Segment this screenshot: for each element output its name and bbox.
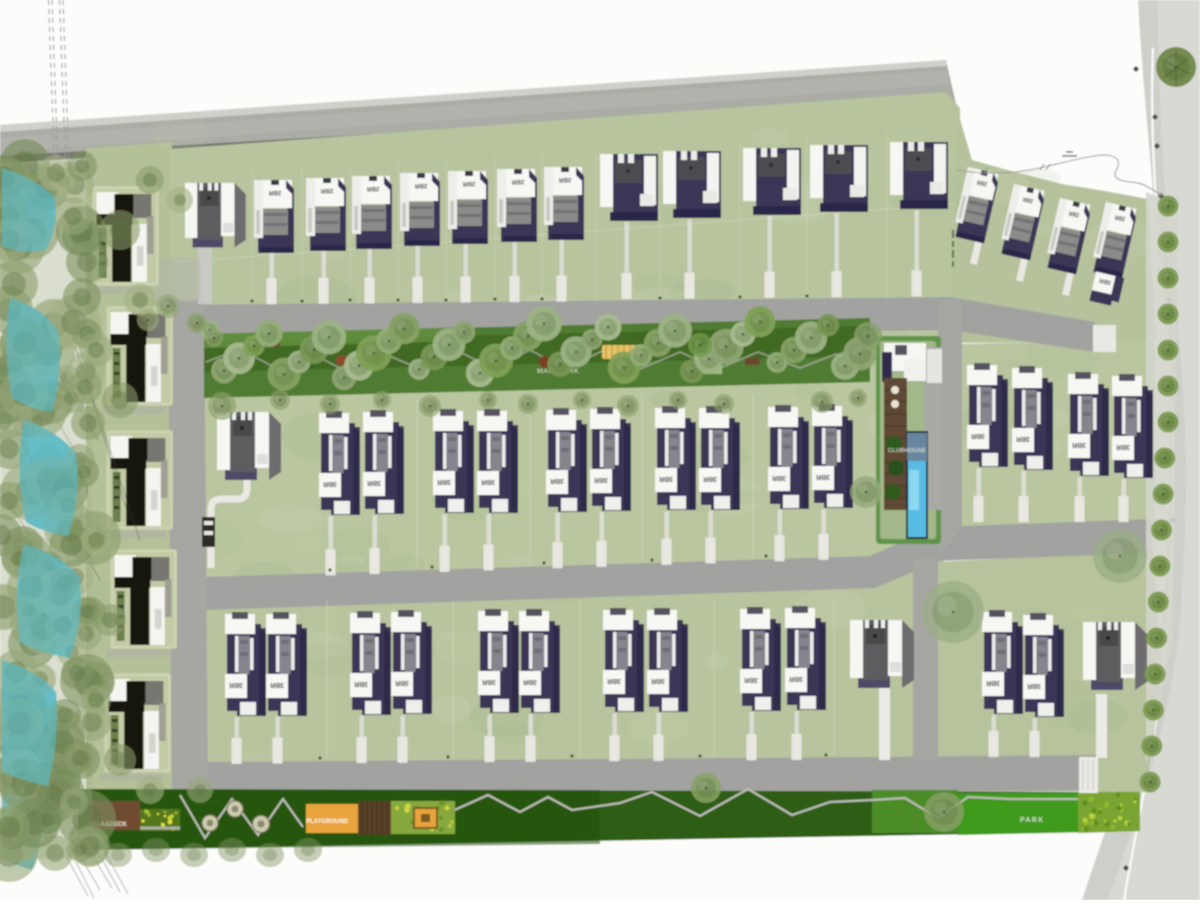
svg-text:CLUBHOUSE: CLUBHOUSE [888, 448, 926, 454]
svg-text:PLAYGROUND: PLAYGROUND [306, 819, 349, 825]
svg-text:PARK: PARK [1020, 817, 1045, 824]
